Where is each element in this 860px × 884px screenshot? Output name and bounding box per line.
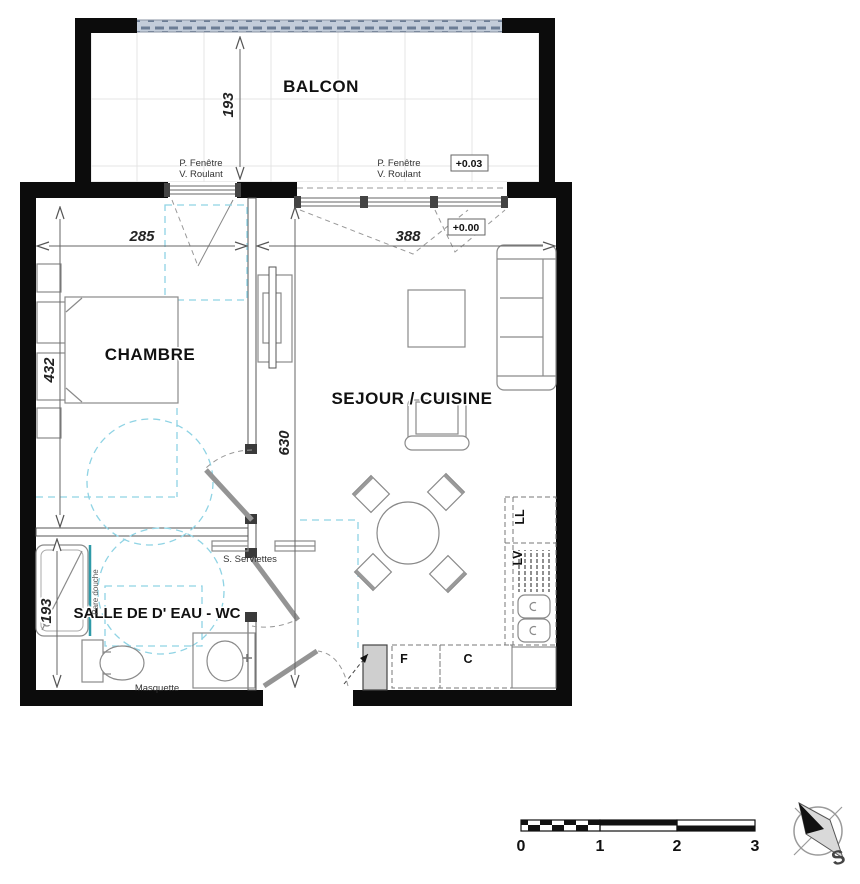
nightstand-bottom bbox=[37, 408, 61, 438]
scale-label-1: 1 bbox=[596, 838, 605, 855]
coffee-table bbox=[408, 290, 465, 347]
room-label-bedroom: CHAMBRE bbox=[105, 345, 195, 364]
room-label-balcony: BALCON bbox=[283, 77, 359, 96]
dining-table bbox=[377, 502, 439, 564]
window-label-left-2: V. Roulant bbox=[179, 169, 223, 180]
floor-plan: 193 285 388 432 630 193 +0.03 +0.00 BALC… bbox=[0, 0, 860, 884]
label-dishwasher: LV bbox=[511, 550, 525, 566]
towel-radiator bbox=[212, 541, 315, 551]
exterior-walls bbox=[20, 182, 572, 706]
balcony-railing bbox=[91, 20, 539, 32]
balcony-wall-right bbox=[539, 20, 555, 182]
window-label-right-1: P. Fenêtre bbox=[377, 158, 420, 169]
sink-basin-1 bbox=[518, 595, 550, 618]
window-label-right-2: V. Roulant bbox=[377, 169, 421, 180]
dimension-living-width: 388 bbox=[395, 228, 421, 245]
dining-set bbox=[353, 474, 467, 593]
scale-label-2: 2 bbox=[673, 838, 682, 855]
sofa bbox=[497, 245, 556, 390]
scale-label-0: 0 bbox=[517, 838, 526, 855]
sink-basin-2 bbox=[518, 619, 550, 642]
accessibility-zones bbox=[36, 205, 358, 654]
technical-shaft bbox=[344, 645, 387, 690]
dimension-living-depth: 630 bbox=[276, 430, 293, 456]
label-fridge: F bbox=[400, 652, 408, 666]
label-shower-screen: Pare douche bbox=[91, 569, 100, 615]
counter-return bbox=[512, 647, 556, 688]
dimension-bedroom-width: 285 bbox=[128, 228, 155, 245]
label-washing-machine: LL bbox=[513, 509, 527, 525]
dimension-balcony-depth: 193 bbox=[220, 92, 237, 118]
dimension-bedroom-depth: 432 bbox=[41, 357, 58, 384]
room-label-living: SEJOUR / CUISINE bbox=[331, 389, 492, 408]
level-balcony: +0.03 bbox=[456, 158, 483, 170]
bathroom-door bbox=[252, 558, 298, 627]
bedroom-window bbox=[164, 182, 241, 266]
scale-bar: 0 1 2 3 bbox=[517, 820, 760, 855]
scale-label-3: 3 bbox=[751, 838, 760, 855]
dimension-bathroom-depth: 193 bbox=[38, 598, 55, 624]
balcony-wall-left bbox=[75, 20, 91, 182]
living-area bbox=[258, 245, 556, 690]
label-cooking: C bbox=[463, 652, 472, 666]
label-masking: Masquette bbox=[135, 683, 179, 694]
entrance-door bbox=[264, 651, 348, 686]
cooking-zone bbox=[440, 645, 512, 688]
tv-screen bbox=[269, 267, 276, 368]
compass-south-label: S bbox=[829, 846, 848, 871]
nightstand-top bbox=[37, 264, 61, 292]
level-interior: +0.00 bbox=[453, 222, 480, 234]
vanity bbox=[193, 633, 255, 688]
north-compass-icon: S bbox=[794, 803, 848, 871]
floor-plan-drawing: 193 285 388 432 630 193 +0.03 +0.00 BALC… bbox=[0, 0, 860, 884]
window-label-left-1: P. Fenêtre bbox=[179, 158, 222, 169]
pillow-left bbox=[37, 302, 67, 343]
label-towel-rail: S. Serviettes bbox=[223, 554, 277, 565]
